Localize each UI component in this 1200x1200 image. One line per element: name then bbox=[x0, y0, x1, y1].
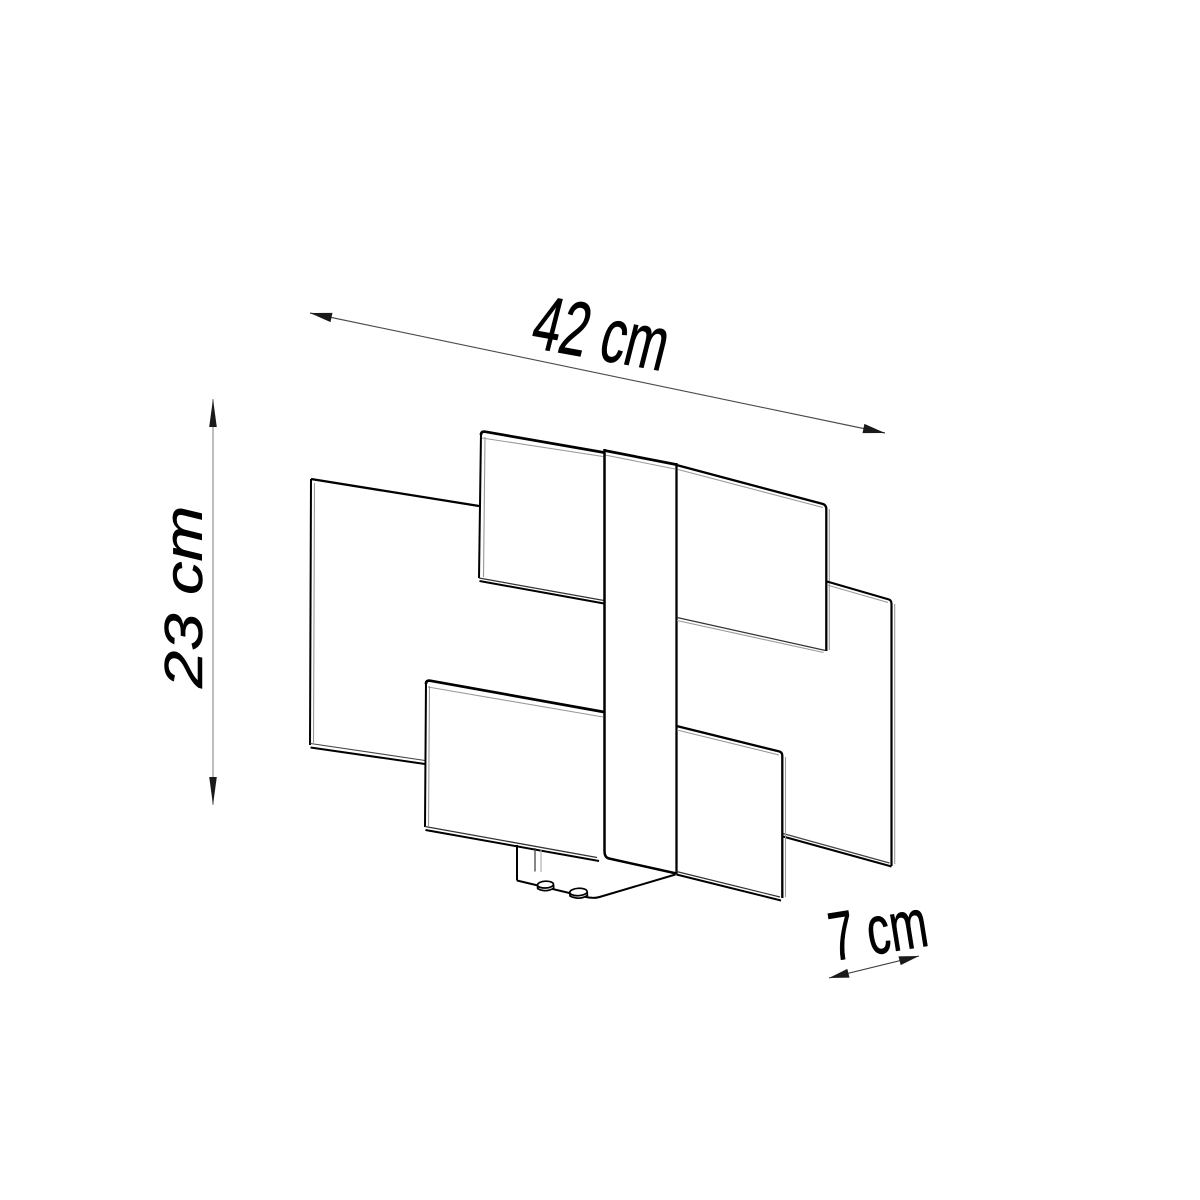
svg-text:7 cm: 7 cm bbox=[823, 885, 933, 976]
svg-text:23 cm: 23 cm bbox=[153, 506, 213, 689]
